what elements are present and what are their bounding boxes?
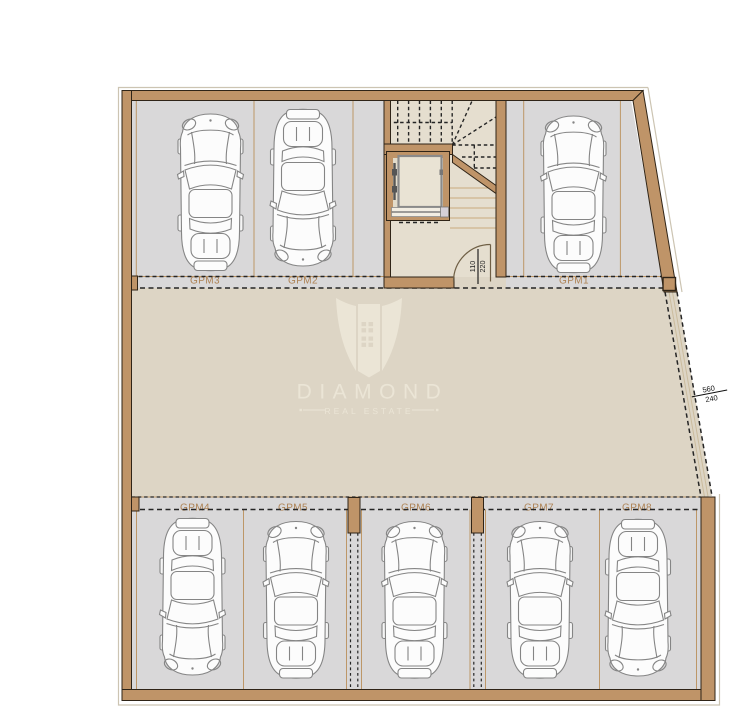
- svg-text:GPM5: GPM5: [278, 503, 308, 514]
- svg-text:GPM8: GPM8: [622, 503, 652, 514]
- svg-text:220: 220: [478, 261, 487, 273]
- svg-text:DIAMOND: DIAMOND: [297, 381, 449, 404]
- svg-text:GPM4: GPM4: [180, 503, 210, 514]
- svg-text:240: 240: [705, 393, 719, 404]
- svg-text:REAL ESTATE: REAL ESTATE: [324, 406, 413, 416]
- svg-text:GPM7: GPM7: [524, 503, 554, 514]
- svg-text:GPM6: GPM6: [401, 503, 431, 514]
- svg-text:110: 110: [468, 261, 477, 272]
